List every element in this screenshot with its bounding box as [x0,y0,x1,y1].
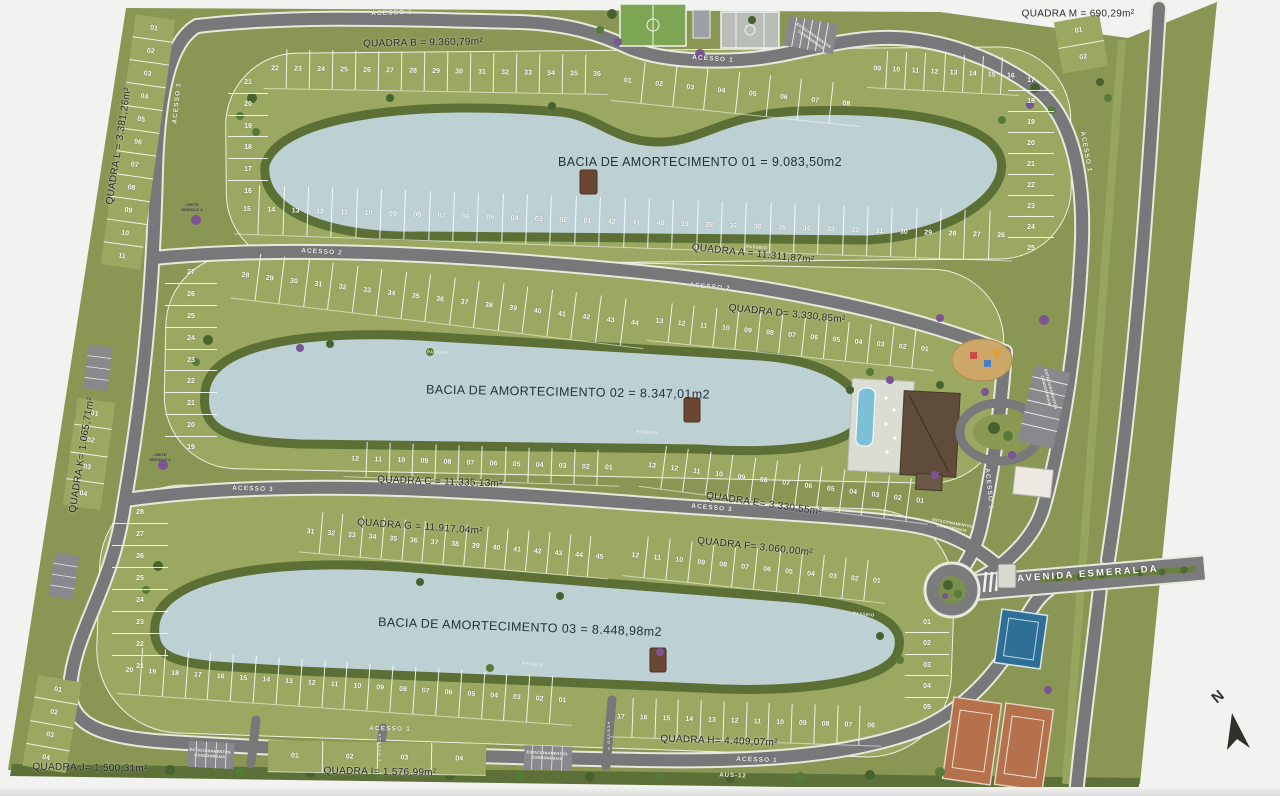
tennis-court [995,703,1054,791]
small-building [693,10,710,38]
lot-number: 01 [549,676,575,724]
quadra-b-label: QUADRA B = 9.360,79m² [363,36,483,49]
lot-number: 35 [769,203,795,253]
limite-modulo-label: LIMITE MÓDULO 2 [177,203,207,213]
lot-number: 27 [165,262,217,283]
lot-number: 09 [379,190,405,240]
lot-number: 03 [525,195,551,245]
lot-number: 35 [562,54,586,93]
quadra-m-lots: 0102 [1054,14,1108,73]
lot-number: 12 [343,441,366,477]
lot-number: 16 [631,698,655,738]
lot-number: 27 [112,523,168,545]
lot-number: 09 [412,444,436,480]
lot-number: 24 [112,589,168,611]
lot-number: 19 [139,648,165,696]
roundabout [925,563,979,617]
quadra-i-label: QUADRA I= 1.576,99m² [323,766,436,779]
lot-number: 06 [859,706,883,746]
acesso-1-label: ACESSO 1 [371,9,413,17]
lot-number: 45 [587,536,611,579]
quadra-b-left-fan-lots: 212019181716 [228,72,268,202]
lot-number: 23 [165,349,217,371]
lot-number: 17 [184,651,210,699]
basin-01-label: BACIA DE AMORTECIMENTO 01 = 9.083,50m2 [558,155,842,169]
lot-number: 03 [550,448,574,484]
lot-number: 31 [470,53,494,92]
lot-number: 27 [963,210,989,260]
lot-number: 03 [503,673,529,721]
lot-number: 11 [366,442,390,478]
lot-number: 24 [309,50,333,89]
lot-number: 04 [905,675,949,696]
lot-number: 13 [275,657,301,705]
lot-number: 11 [331,188,357,238]
blue-court [994,609,1047,669]
lot-number: 06 [452,192,478,242]
lot-number: 26 [988,211,1014,261]
lot-number: 34 [539,54,563,93]
lot-number: 09 [867,50,887,88]
guardhouse [998,564,1016,588]
lot-number: 28 [939,209,965,259]
lot-number: 29 [915,208,941,258]
lot-number: 12 [923,53,944,91]
lot-number: 09 [367,664,393,712]
lot-number: 14 [962,55,983,93]
acesso-4-label: ACESSO 4 [607,721,612,750]
lot-number: 04 [703,69,738,113]
lot-number: 16 [228,180,268,202]
playground [952,339,1012,381]
lot-number: 18 [1008,90,1054,111]
lot-number: 17 [609,697,632,737]
lot-number: 07 [797,79,832,123]
lot-number: 08 [404,190,430,240]
acesso-1-label: ACESSO 1 [369,725,411,733]
acesso-3-label: ACESSO 3 [232,485,274,493]
passeio-label: PASSEIO [636,429,658,435]
lot-number: 04 [501,194,527,244]
quadra-h-right-fan-lots: 0102030405 [905,612,949,718]
lot-number: 15 [654,699,678,739]
lot-number: 15 [981,56,1002,94]
lot-number: 05 [905,697,949,718]
lot-number: 20 [228,93,268,115]
lot-number: 01 [596,450,620,486]
lot-number: 40 [647,199,673,249]
lot-number: 01 [863,560,889,603]
lot-number: 27 [378,51,402,90]
lot-number: 10 [885,51,906,89]
page-bottom-shadow [0,787,1280,796]
lot-number: 22 [1008,174,1054,195]
lot-number: 18 [162,649,188,697]
middle-left-fan-lots: 272625242322212019 [165,262,217,458]
lot-number: 07 [428,191,454,241]
lot-number: 36 [585,55,609,94]
lot-number: 02 [550,195,576,245]
lot-number: 16 [207,652,233,700]
lot-number: 18 [228,136,268,158]
lot-number: 24 [1008,216,1054,237]
lot-number: 12 [298,659,324,707]
lot-number: 31 [866,206,892,256]
lot-number: 08 [389,665,415,713]
tennis-court [943,697,1002,785]
lot-number: 01 [911,329,937,370]
lot-number: 06 [481,446,505,482]
lot-number: 05 [477,193,503,243]
lot-number: 26 [112,545,168,567]
lot-number: 08 [435,444,459,480]
lot-number: 02 [905,632,949,653]
lot-number: 20 [1008,132,1054,153]
quadra-j-label: QUADRA J= 1.500,31m² [32,761,147,774]
lot-number: 42 [598,197,624,247]
lot-number: 20 [165,414,217,436]
lot-number: 07 [412,667,438,715]
lot-number: 34 [793,204,819,254]
lot-number: 23 [286,49,310,88]
lot-number: 33 [817,205,843,255]
lot-number: 17 [228,158,268,180]
lot-number: 01 [268,740,322,772]
lot-number: 37 [720,201,746,251]
lot-number: 13 [282,186,308,236]
lot-number: 02 [573,449,597,485]
lot-number: 19 [228,115,268,137]
acesso-5-label: ACESSO 5 [378,733,383,762]
lot-number: 07 [458,445,482,481]
clubhouse-roof [900,391,960,478]
lot-number: 19 [1008,111,1054,132]
lot-number: 02 [641,62,676,106]
lot-number: 02 [526,675,552,723]
lot-number: 01 [905,612,949,632]
lot-number: 12 [306,187,332,237]
lot-number: 08 [813,704,837,744]
quadra-a-right-fan-lots: 171819202122232425 [1008,70,1054,258]
lot-number: 17 [1008,70,1054,90]
lot-number: 28 [401,51,425,90]
lot-number: 10 [389,443,413,479]
lot-number: 25 [112,567,168,589]
lot-number: 01 [574,196,600,246]
lot-number: 06 [435,668,461,716]
lot-number: 22 [165,370,217,392]
lot-number: 25 [1008,237,1054,258]
lot-number: 32 [842,206,868,256]
lot-number: 26 [165,283,217,305]
lot-number: 29 [424,52,448,91]
lot-number: 03 [905,654,949,675]
lot-number: 10 [344,662,370,710]
quadra-a-top-lots-2: 0910111213141516 [867,50,1021,96]
passeio-label: PASSEIO [427,349,449,355]
lot-number: 41 [623,198,649,248]
site-plan-map: 222324252627282930313233343536 010203040… [0,0,1280,796]
lot-number: 14 [253,656,279,704]
lot-number: 04 [527,448,551,484]
lot-number: 08 [828,82,863,126]
support-building [1013,466,1054,498]
lot-number: 07 [836,705,860,745]
lot-number: 05 [504,447,528,483]
quadra-b-top-lots: 222324252627282930313233343536 [264,49,609,95]
limite-modulo-label: LIMITE MÓDULO 2 [145,453,175,463]
aus-12-label: AUS-12 [719,773,747,780]
lot-number: 23 [1008,195,1054,216]
lot-number: 05 [458,670,484,718]
lot-number: 21 [1008,153,1054,174]
lot-number: 25 [332,50,356,89]
quadra-m-label: QUADRA M = 690,29m² [1022,9,1135,20]
lot-number: 10 [355,189,381,239]
lot-number: 32 [493,53,517,92]
lot-number: 25 [165,305,217,327]
lot-number: 03 [672,66,707,110]
swimming-pool [855,388,875,447]
lot-number: 09 [790,704,814,744]
lot-number: 23 [112,611,168,633]
lot-number: 04 [431,743,486,775]
lot-number: 28 [112,502,168,523]
lot-number: 06 [766,75,801,119]
lot-number: 30 [890,207,916,257]
lot-number: 24 [165,327,217,349]
lot-number: 04 [481,672,507,720]
acesso-1-label: ACESSO 1 [736,756,778,764]
lot-number: 13 [943,54,964,92]
lot-number: 11 [321,660,347,708]
lot-number: 30 [447,52,471,91]
lot-number: 15 [230,654,256,702]
lot-number: 26 [355,51,379,90]
lot-number: 33 [516,53,540,92]
lot-number: 05 [734,72,769,116]
lot-number: 01 [611,59,645,103]
lot-number: 21 [165,392,217,414]
lot-number: 11 [904,52,925,90]
lot-number: 21 [228,72,268,93]
